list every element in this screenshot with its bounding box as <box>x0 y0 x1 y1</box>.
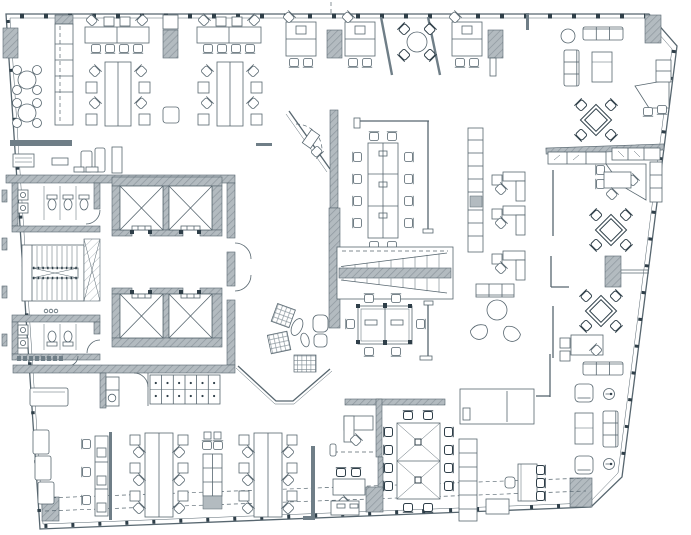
diamond-table <box>579 289 622 332</box>
toilet <box>79 195 89 210</box>
coffee-table <box>575 413 593 444</box>
desk <box>486 499 509 514</box>
sofa <box>583 27 623 40</box>
elevator-cab <box>169 294 212 338</box>
column <box>327 30 342 58</box>
sofa <box>603 411 618 447</box>
sofa <box>583 362 623 375</box>
armchair <box>575 456 593 474</box>
desk <box>604 172 631 188</box>
diamond-table <box>574 98 617 141</box>
side-table <box>163 107 179 123</box>
pouf <box>294 355 316 372</box>
partition-wall <box>345 399 445 405</box>
coffee-table <box>592 52 612 82</box>
elevator-cab <box>120 186 163 230</box>
printer <box>13 154 34 167</box>
column <box>488 30 503 58</box>
sink <box>18 325 28 335</box>
elevator-cab <box>120 294 163 338</box>
stool <box>505 477 515 488</box>
kitchen-counter <box>55 24 73 125</box>
toilet <box>47 195 57 210</box>
toilet <box>63 195 73 210</box>
lounge-table <box>487 300 507 320</box>
column <box>570 478 592 507</box>
privacy-screen <box>109 432 112 520</box>
ottoman <box>561 29 575 43</box>
counter-wall <box>10 140 72 146</box>
sofa <box>564 50 579 86</box>
stair-stringer <box>339 268 451 278</box>
feature-stair <box>337 247 453 299</box>
spine-wall <box>330 110 338 208</box>
stair-west <box>22 239 100 301</box>
credenza <box>612 148 660 160</box>
corridor-wall <box>227 183 235 238</box>
column <box>163 30 178 58</box>
floor-plan <box>0 0 691 535</box>
elevator-cab <box>169 186 212 230</box>
sink <box>18 190 28 200</box>
column <box>605 256 621 287</box>
column <box>3 28 18 58</box>
cabinet-strip <box>468 128 483 252</box>
armchair <box>575 384 593 402</box>
toilet <box>47 331 57 346</box>
wall-sofa <box>33 430 49 454</box>
privacy-screen <box>311 446 315 518</box>
floor-plan-drawing <box>0 0 691 535</box>
ottoman <box>314 334 327 347</box>
sink <box>18 338 28 348</box>
bench <box>30 388 68 406</box>
core-wall <box>13 365 235 373</box>
pouf <box>267 331 291 354</box>
sink <box>18 203 28 213</box>
armchair <box>313 315 328 332</box>
diamond-table <box>589 208 632 251</box>
desk-pod <box>239 433 297 517</box>
desk-pod <box>130 433 188 517</box>
column <box>366 487 383 512</box>
daybed <box>460 389 534 424</box>
desk <box>333 479 365 495</box>
column <box>645 15 661 43</box>
toilet <box>63 331 73 346</box>
